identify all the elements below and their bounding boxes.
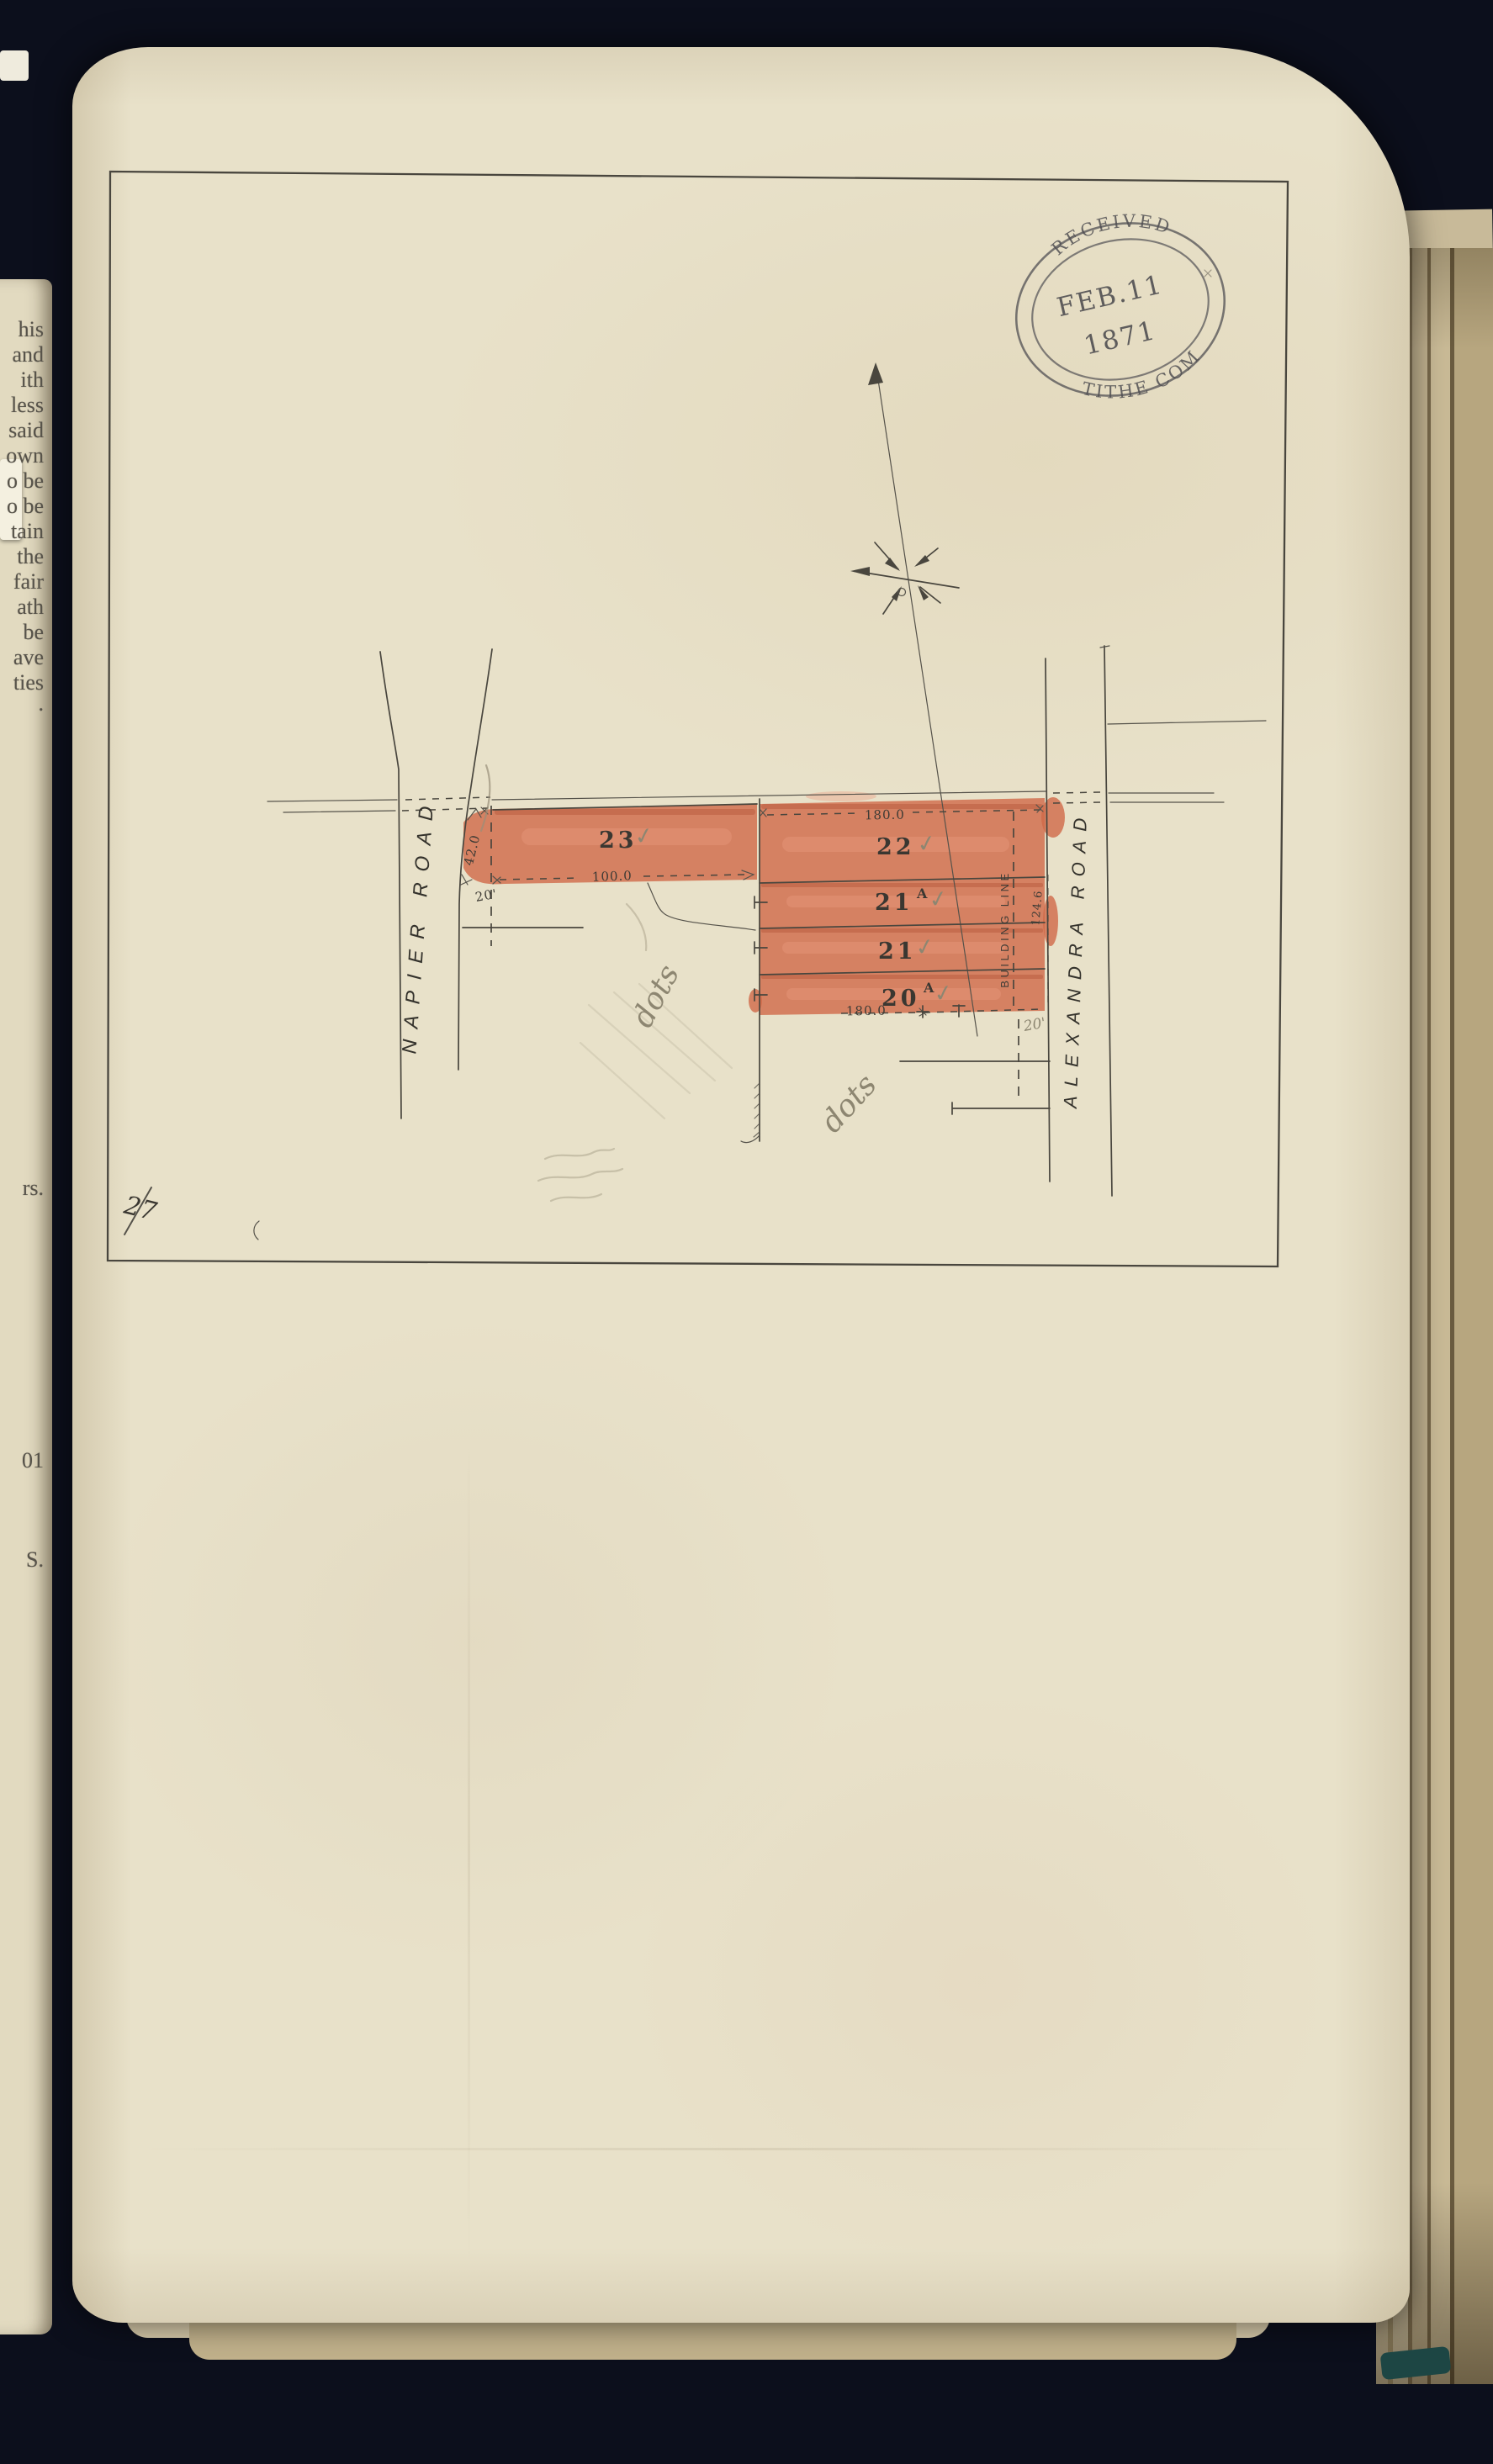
pencil-note-right: dots [814, 1068, 883, 1139]
lot-23-label: 23 [599, 828, 638, 854]
pencil-scribbles [538, 904, 732, 1201]
road-label-alexandra: ALEXANDRA ROAD [1060, 808, 1091, 1110]
lot-22-label: 22 [876, 834, 915, 860]
date-stamp: RECEIVED FEB.11 1871 TITHE COM [998, 202, 1242, 417]
stamp-text-top: RECEIVED [1048, 211, 1175, 260]
east-street-lines [1053, 721, 1266, 803]
lot-20a-label: 20 [882, 986, 920, 1012]
measurement-setback: 20' [474, 886, 499, 905]
stamp-date: FEB.11 [1054, 269, 1166, 323]
measurement-top: 180.0 [865, 807, 905, 823]
pencil-note-left: dots [626, 960, 687, 1034]
pencil-lot-depth: 20' [1021, 1015, 1046, 1035]
bracket-mark [254, 1221, 259, 1240]
road-label-napier: NAPIER ROAD [398, 795, 438, 1055]
lot-21-label: 21 [878, 939, 917, 965]
lot-21a-label: 21 [875, 890, 913, 916]
measurement-lot23: 100.0 [592, 868, 633, 885]
napier-road-lines [380, 649, 492, 1118]
corner-mark: 27 [120, 1191, 160, 1228]
west-street-lines [267, 797, 490, 812]
measurement-bottom: 180.0 [846, 1003, 887, 1019]
building-line-label: BUILDING LINE [998, 870, 1011, 987]
stamp-year: 1871 [1081, 315, 1159, 362]
survey-plan: RECEIVED FEB.11 1871 TITHE COM [0, 0, 1493, 2464]
